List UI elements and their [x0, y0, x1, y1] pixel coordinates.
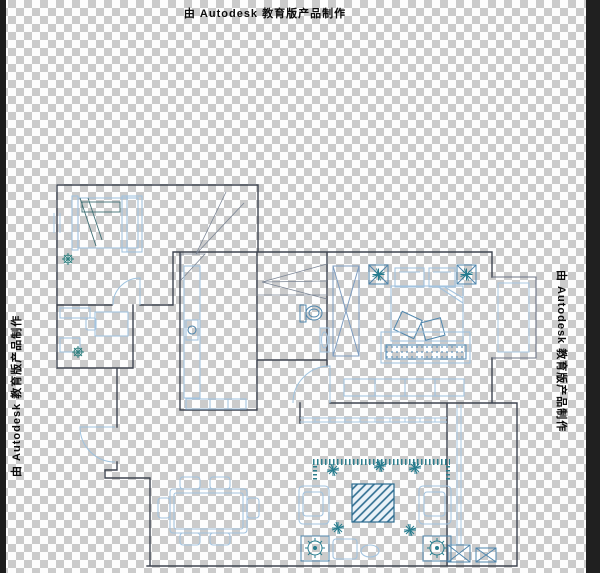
autodesk-watermark-top: 由 Autodesk 教育版产品制作 [115, 5, 415, 21]
bedroom-a-furniture [60, 196, 142, 358]
autodesk-watermark-left: 由 Autodesk 教育版产品制作 [8, 282, 24, 477]
autodesk-watermark-right: 由 Autodesk 教育版产品制作 [554, 270, 570, 465]
bedroom-b-furniture [333, 265, 476, 396]
coffee-table [352, 484, 394, 522]
floor-plan-drawing [0, 0, 600, 573]
walls [57, 185, 517, 566]
dining-furniture [158, 477, 259, 545]
balcony-planters [448, 545, 496, 562]
bench [381, 332, 470, 363]
construction-lines [181, 192, 327, 299]
kitchen-furniture [184, 266, 246, 409]
living-room-furniture [299, 460, 451, 561]
autocad-export-canvas: 由 Autodesk 教育版产品制作 由 Autodesk 教育版产品制作 由 … [0, 0, 600, 573]
bathroom-fixtures [300, 305, 329, 352]
